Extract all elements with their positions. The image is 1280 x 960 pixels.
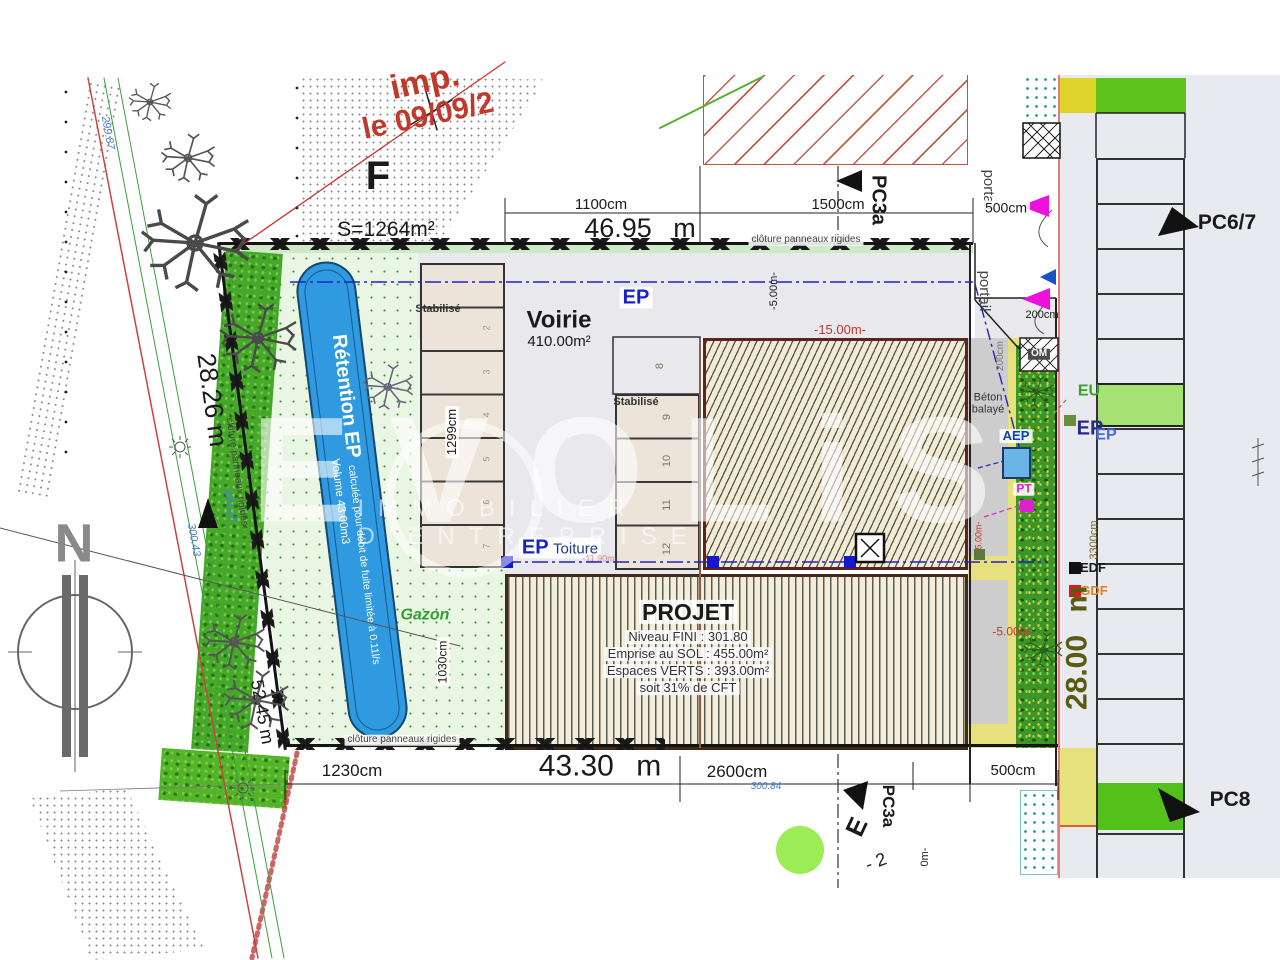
- ep-right2-label: EP: [1095, 428, 1116, 445]
- offset-5-top: -5.00m-: [769, 272, 781, 310]
- stall-num-9: 9: [662, 414, 674, 420]
- green-parking-stall: [1098, 383, 1183, 427]
- offset-5-gate: -5.00m-: [974, 521, 983, 552]
- project-building-roof: [703, 338, 968, 570]
- pc3a-bottom-label: PC3a: [879, 785, 897, 828]
- voirie-area-label: 410.00m²: [527, 334, 590, 350]
- offset-15: -15.00m-: [814, 323, 866, 337]
- dim-right-len: 3300cm: [1089, 520, 1101, 559]
- planting-dots-top: [1023, 75, 1058, 123]
- projet-line1: Niveau FINI : 301.80: [625, 630, 750, 644]
- offset-1190: -11.90m-: [582, 554, 617, 563]
- dim-top-total: 46.95 m: [584, 214, 696, 242]
- om-label: OM: [1028, 349, 1050, 360]
- beton-label: Béton balayé: [966, 392, 1010, 415]
- plan-letter: F: [366, 155, 390, 197]
- compass-rose: [8, 560, 142, 772]
- portail-mid-label: portail: [976, 271, 992, 312]
- projet-title: PROJET: [639, 600, 737, 624]
- street-parking-column: [1096, 158, 1185, 878]
- edf-label: EDF: [1080, 561, 1106, 575]
- gate2-width-label: 200cm: [1025, 310, 1058, 322]
- yellow-strip-bottom-right: [1060, 748, 1097, 827]
- pt-label: PT: [1013, 483, 1034, 496]
- ep-toiture-ep: EP: [522, 537, 549, 559]
- offset-bottom: 0m-: [920, 848, 932, 867]
- dim-bottom-seg3: 500cm: [990, 763, 1035, 779]
- level-3: 300.43: [184, 522, 201, 557]
- stall-left-6: 6: [482, 499, 491, 504]
- parking-column-mid: [615, 394, 700, 570]
- dim-top-seg2: 1500cm: [811, 197, 864, 213]
- stabilise1-label: Stabilisé: [415, 304, 460, 316]
- yellow-square-top: [1060, 78, 1096, 113]
- stall-num-10: 10: [662, 455, 674, 467]
- voirie-label: Voirie: [527, 307, 592, 332]
- strip-width-label: 200cm: [996, 341, 1007, 371]
- green-dot-marker: [776, 826, 824, 874]
- dim-top-seg1: 1100cm: [575, 197, 627, 213]
- stall-left-5: 5: [482, 456, 491, 461]
- dim-bottom-seg2: 2600cm: [707, 763, 767, 781]
- minus2-label: - 2: [863, 850, 889, 875]
- stall-left-2: 2: [482, 325, 491, 330]
- stall-left-3: 3: [482, 369, 491, 374]
- fence-label-top: clôture panneaux rigides: [749, 235, 864, 246]
- green-block-pc8: [1098, 783, 1183, 830]
- pc67-label: PC6/7: [1198, 212, 1256, 234]
- stall-num-11: 11: [662, 499, 674, 510]
- eu-label: EU: [1078, 384, 1100, 401]
- pc3a-top-label: PC3a: [868, 175, 889, 225]
- pc8-label: PC8: [1210, 789, 1251, 811]
- fence-label-bottom: clôture panneaux rigides: [345, 735, 460, 746]
- projet-line4: soit 31% de CFT: [637, 681, 740, 695]
- planting-dots-bottom: [1020, 790, 1058, 875]
- stall-left-7: 7: [482, 543, 491, 548]
- north-letter: N: [55, 516, 94, 573]
- stipple-bottom: [30, 788, 205, 960]
- stall-num-8: 8: [655, 363, 667, 369]
- dim-right-side: 28.00 m: [1061, 586, 1093, 710]
- stabilise2-label: Stabilisé: [613, 397, 658, 409]
- level-4: 300.84: [751, 782, 782, 793]
- gate-width-label: 500cm: [982, 201, 1030, 216]
- surface-label: S=1264m²: [337, 219, 434, 241]
- dim-bottom-total: 43.30 m: [539, 750, 661, 782]
- green-block-top: [1096, 78, 1186, 113]
- e-letter: E: [841, 813, 873, 840]
- hedge-band-right: [1016, 345, 1056, 748]
- existing-building-hatch: [703, 75, 968, 165]
- projet-line3: Espaces VERTS : 393.00m²: [604, 664, 772, 678]
- yellow-band-mid: [968, 556, 1008, 580]
- dim-bottom-seg1: 1230cm: [322, 762, 382, 780]
- site-plan: Rétention EP calculée pour débit de fuit…: [0, 0, 1280, 960]
- projet-line2: Emprise au SOL : 455.00m²: [605, 647, 772, 661]
- dim-green-width: 1030cm: [437, 638, 450, 687]
- stall-left-4: 4: [482, 412, 491, 417]
- offset-5-right: -5.00m-: [992, 626, 1033, 639]
- gazon-label: Gazon: [401, 608, 450, 625]
- ep-main-label: EP: [620, 288, 653, 309]
- lawn-block-bottom-left: [158, 748, 289, 809]
- dim-stall-depth: 1299cm: [445, 406, 459, 458]
- aep-label: AEP: [1000, 429, 1033, 443]
- stall-num-12: 12: [662, 543, 674, 555]
